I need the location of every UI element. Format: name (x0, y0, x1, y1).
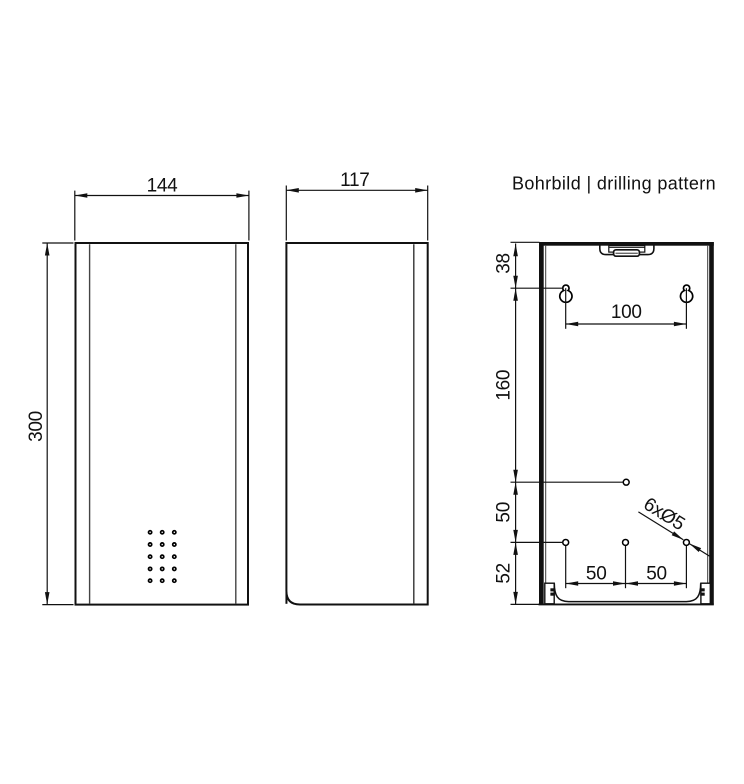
svg-text:100: 100 (611, 302, 642, 323)
svg-text:50: 50 (494, 502, 515, 523)
svg-text:117: 117 (340, 170, 369, 191)
svg-text:52: 52 (494, 563, 515, 584)
svg-text:50: 50 (646, 563, 667, 584)
svg-text:50: 50 (586, 563, 607, 584)
svg-text:144: 144 (147, 175, 179, 196)
svg-text:38: 38 (494, 253, 515, 274)
svg-text:300: 300 (26, 411, 47, 442)
svg-text:160: 160 (494, 370, 515, 401)
svg-text:Bohrbild | drilling pattern: Bohrbild | drilling pattern (512, 173, 716, 193)
